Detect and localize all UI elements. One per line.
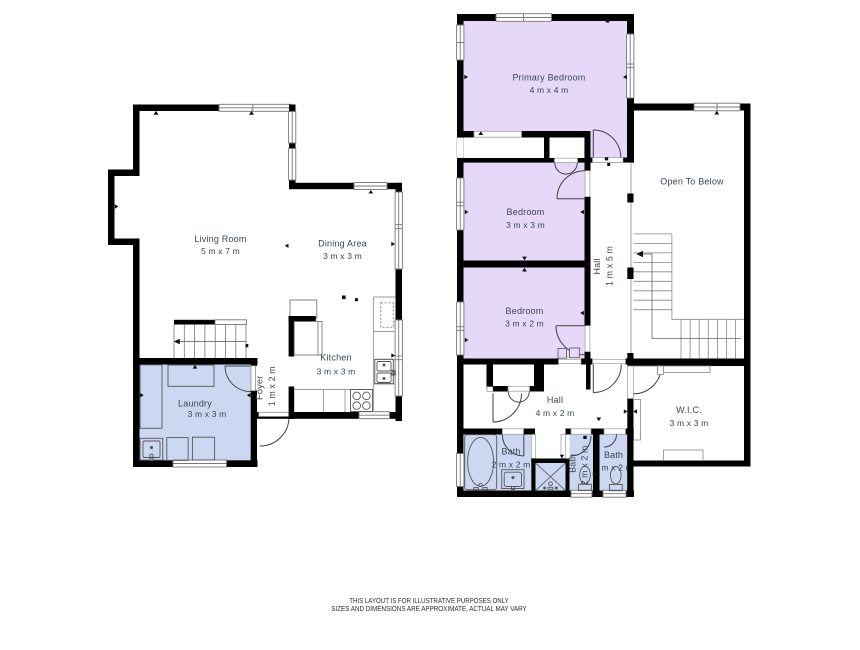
svg-text:Bedroom: Bedroom xyxy=(507,207,545,217)
svg-text:W.I.C.: W.I.C. xyxy=(676,405,702,415)
svg-text:Open To Below: Open To Below xyxy=(660,176,724,186)
svg-text:Bedroom: Bedroom xyxy=(506,306,544,316)
svg-text:4 m x 2 m: 4 m x 2 m xyxy=(536,408,575,418)
svg-text:SIZES AND DIMENSIONS ARE APPRO: SIZES AND DIMENSIONS ARE APPROXIMATE, AC… xyxy=(331,606,527,613)
svg-text:Dining Area: Dining Area xyxy=(318,238,367,248)
svg-text:Living Room: Living Room xyxy=(194,234,246,244)
svg-text:Primary Bedroom: Primary Bedroom xyxy=(512,72,585,82)
svg-text:3 m x 3 m: 3 m x 3 m xyxy=(506,220,545,230)
svg-text:3 m x 2 m: 3 m x 2 m xyxy=(505,319,544,329)
svg-text:4 m x 4 m: 4 m x 4 m xyxy=(530,85,569,95)
svg-text:3 m x 3 m: 3 m x 3 m xyxy=(670,418,709,428)
svg-text:Bath: Bath xyxy=(568,454,578,473)
svg-text:Hall: Hall xyxy=(592,259,602,275)
svg-text:5 m x 7 m: 5 m x 7 m xyxy=(201,246,240,256)
svg-text:Bath: Bath xyxy=(502,447,521,457)
svg-text:Bath: Bath xyxy=(604,450,623,460)
svg-text:Laundry: Laundry xyxy=(178,399,212,409)
svg-text:3 m x 3 m: 3 m x 3 m xyxy=(323,251,362,261)
svg-text:1 m x 2 m: 1 m x 2 m xyxy=(267,366,277,406)
svg-text:3 m x 3 m: 3 m x 3 m xyxy=(317,366,356,376)
svg-text:3 m x 3 m: 3 m x 3 m xyxy=(188,409,227,419)
svg-text:Foyer: Foyer xyxy=(254,376,265,400)
svg-text:Kitchen: Kitchen xyxy=(320,353,351,363)
svg-text:2 m x 2 m: 2 m x 2 m xyxy=(580,446,590,486)
svg-text:THIS LAYOUT IS FOR ILLUSTRATIV: THIS LAYOUT IS FOR ILLUSTRATIVE PURPOSES… xyxy=(349,598,509,605)
svg-text:Hall: Hall xyxy=(547,395,563,405)
svg-text:2 m x 2 m: 2 m x 2 m xyxy=(492,459,531,469)
svg-text:1 m x 5 m: 1 m x 5 m xyxy=(605,246,615,286)
